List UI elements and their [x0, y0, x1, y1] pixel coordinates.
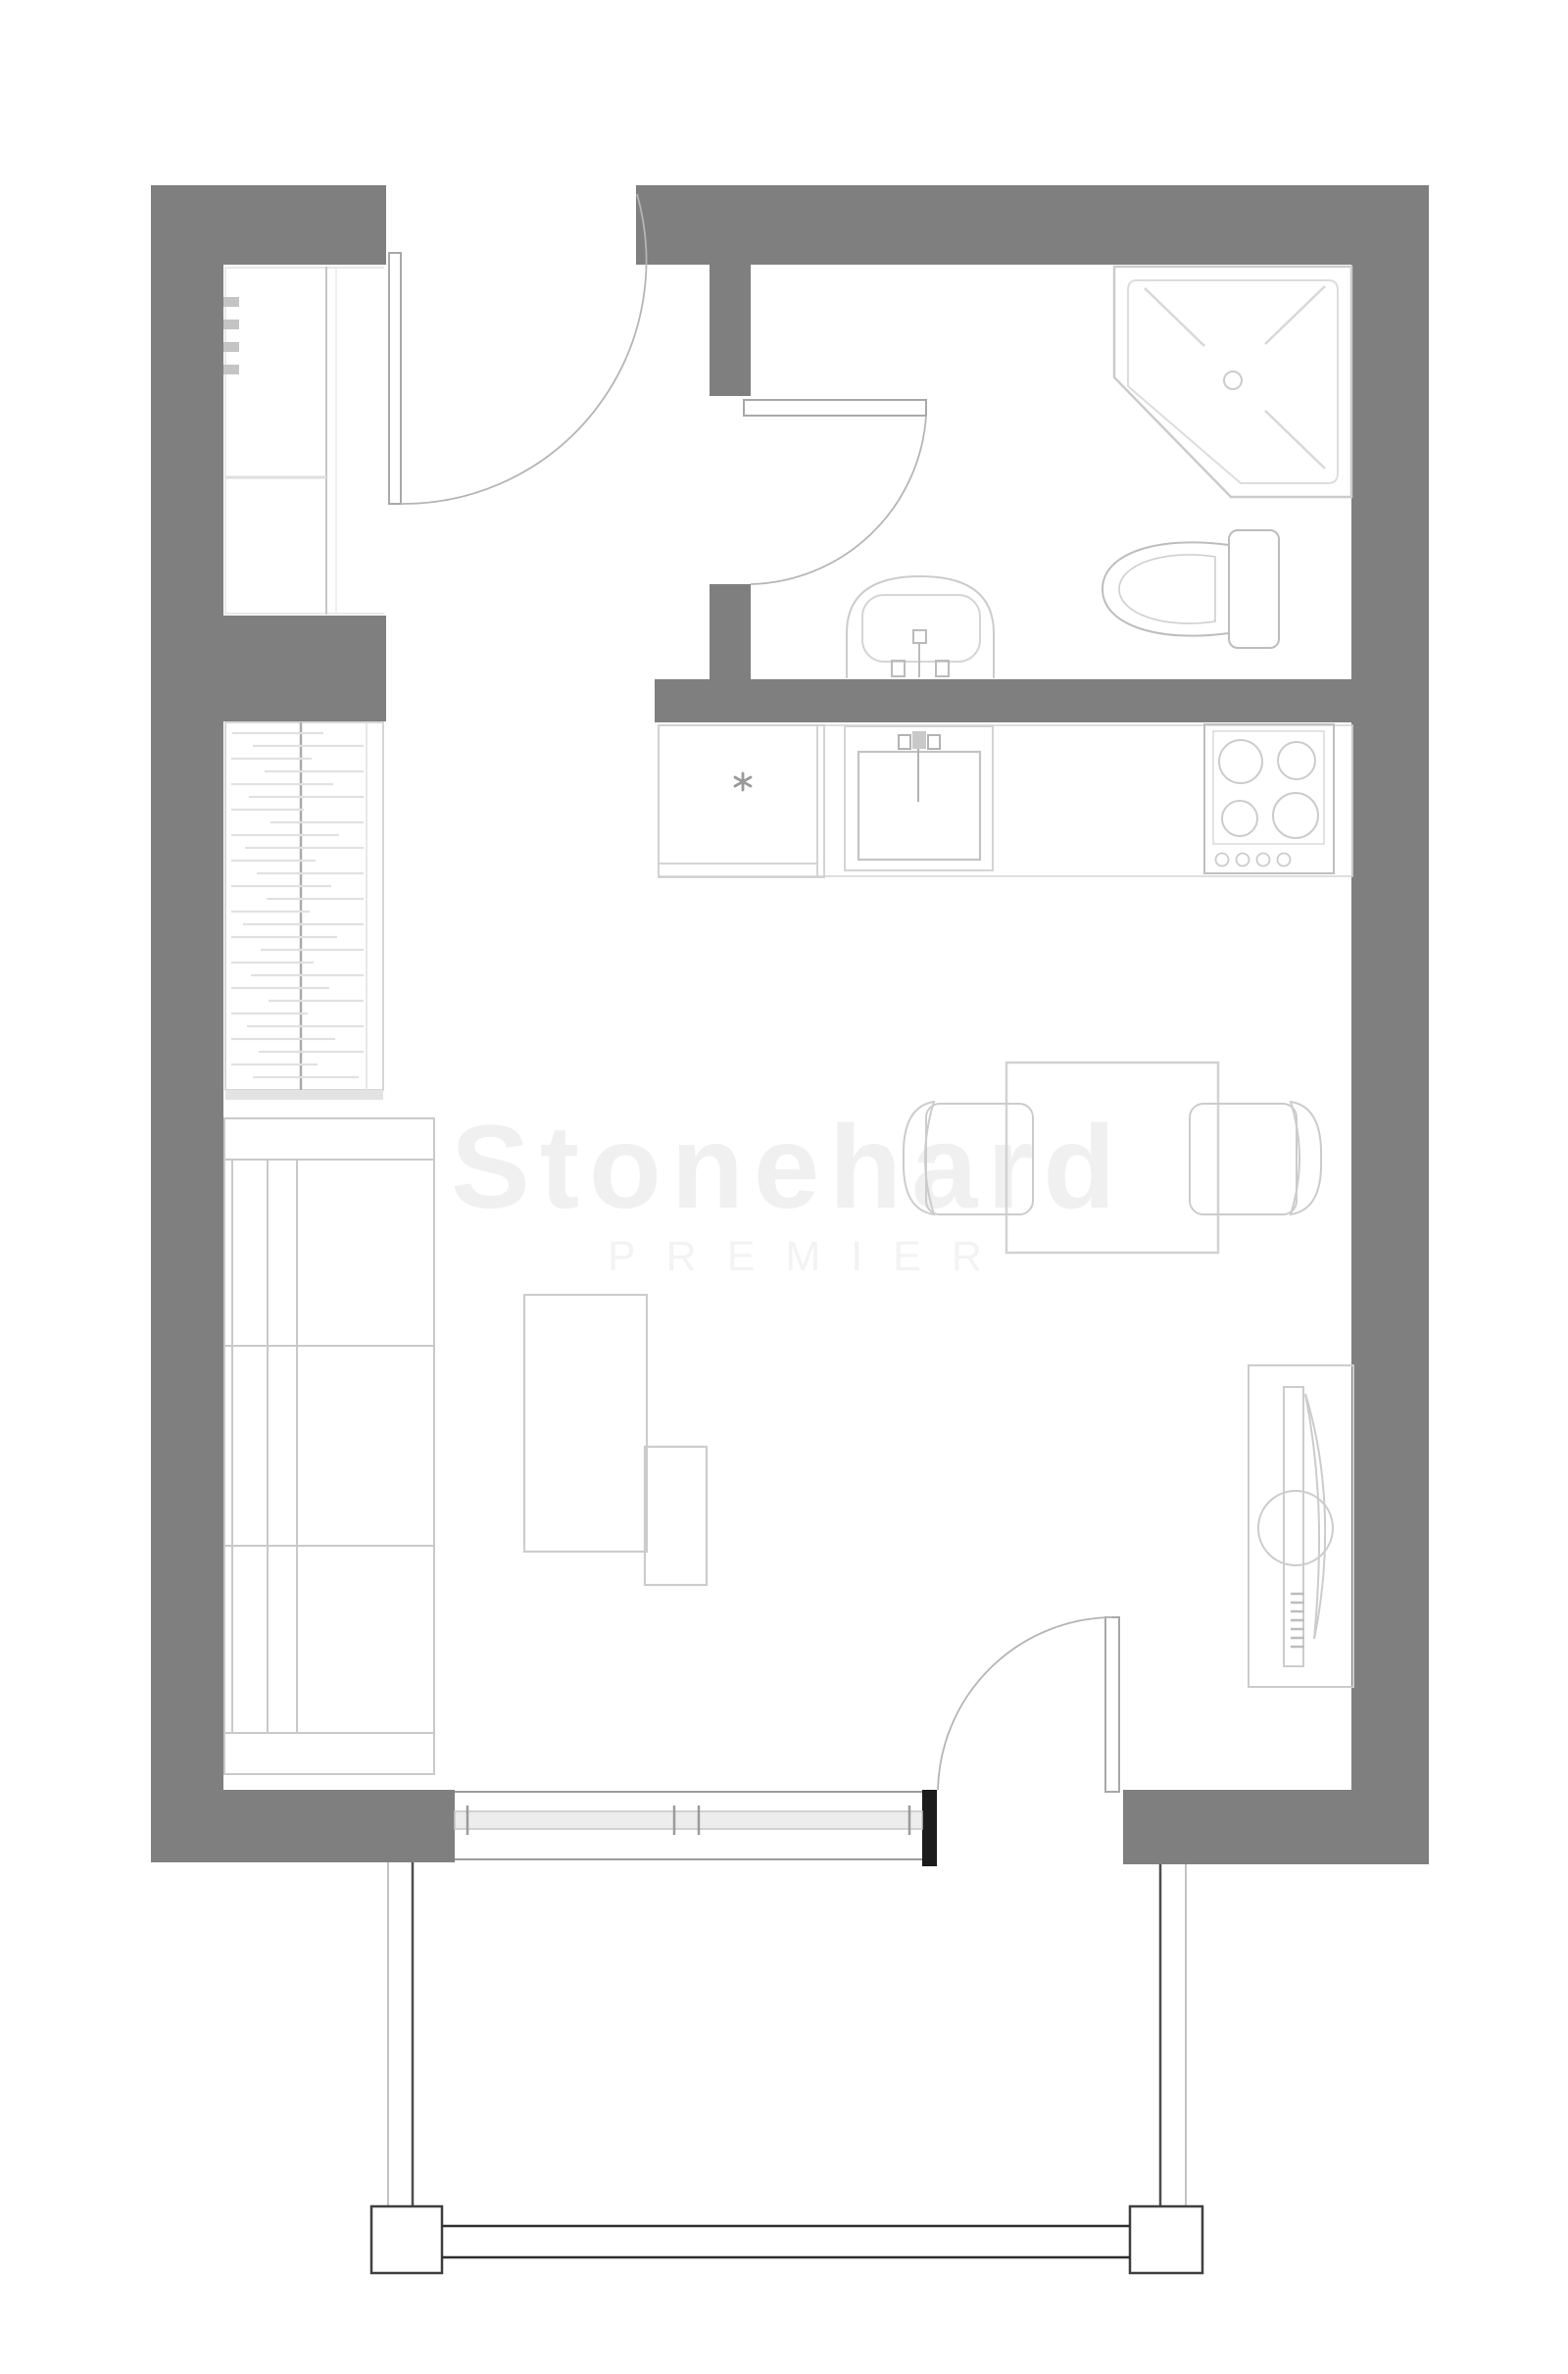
- svg-text:PREMIER: PREMIER: [608, 1233, 1012, 1280]
